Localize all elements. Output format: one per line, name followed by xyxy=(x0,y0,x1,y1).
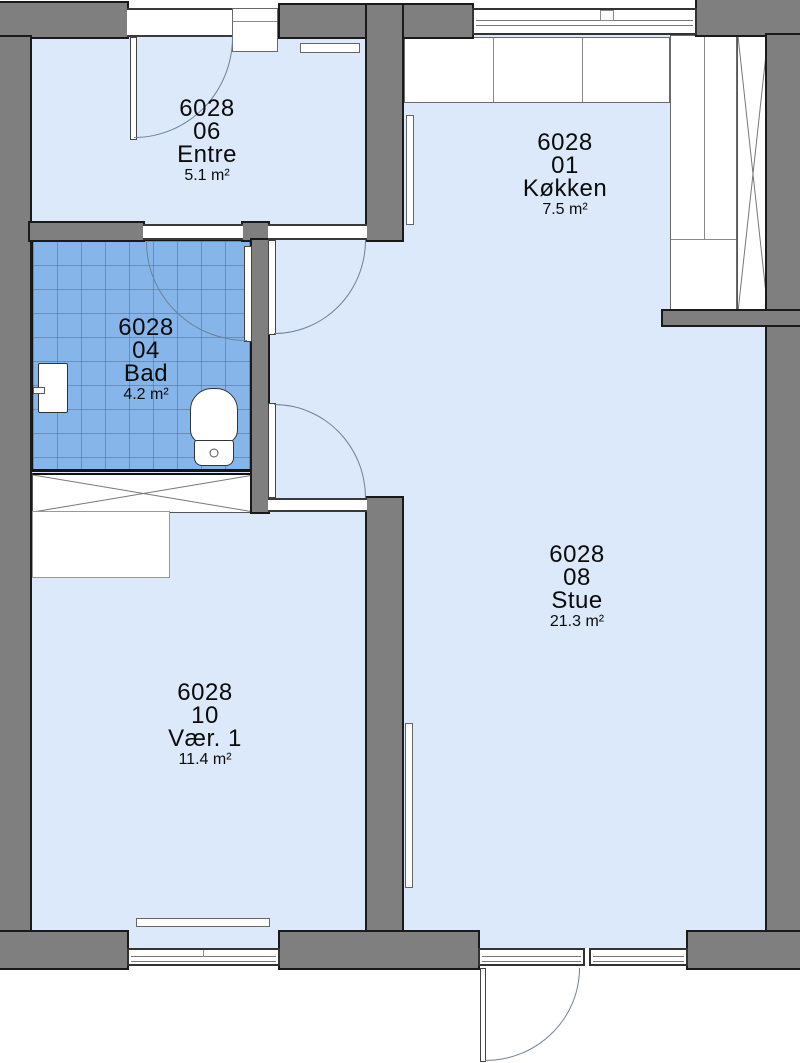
room-label-bad: 6028 04 Bad 4.2 m² xyxy=(61,316,231,405)
wall-bedroom-livingroom xyxy=(367,498,402,932)
wall-top-left xyxy=(0,3,127,37)
floor-plan: 6028 01 Køkken 7.5 m² 6028 04 Bad 4.2 m²… xyxy=(0,0,800,1063)
room-number: 04 xyxy=(61,339,231,362)
room-label-vaer1: 6028 10 Vær. 1 11.4 m² xyxy=(120,681,290,770)
wall-entre-kitchen xyxy=(367,5,402,240)
wall-bottom-a xyxy=(0,932,127,968)
bathroom-door-frame xyxy=(143,224,243,240)
radiator-livingroom xyxy=(405,723,413,888)
room-number: 08 xyxy=(492,566,662,589)
window-mullion xyxy=(600,10,614,21)
entrance-door-arc xyxy=(485,968,580,1061)
room-number: 06 xyxy=(122,120,292,143)
room-name: Vær. 1 xyxy=(120,727,290,750)
room-number: 10 xyxy=(120,704,290,727)
room-id: 6028 xyxy=(61,316,231,339)
wall-top-right xyxy=(697,0,800,35)
wall-bottom-c xyxy=(688,932,800,968)
toilet-tank xyxy=(194,440,234,466)
wall-left xyxy=(0,37,30,932)
room-name: Køkken xyxy=(480,177,650,200)
room-area: 4.2 m² xyxy=(61,385,231,405)
room-label-stue: 6028 08 Stue 21.3 m² xyxy=(492,543,662,632)
room-area: 11.4 m² xyxy=(120,750,290,770)
wall-right xyxy=(767,35,800,968)
radiator-bedroom xyxy=(136,918,270,927)
room-label-kokken: 6028 01 Køkken 7.5 m² xyxy=(480,131,650,220)
radiator-entre xyxy=(300,43,360,53)
wall-kitchen-south xyxy=(663,311,800,325)
bedroom-window xyxy=(127,948,280,966)
entrance-door-threshold xyxy=(478,948,585,966)
entre-entry-door-frame xyxy=(127,8,232,37)
wardrobe-crossbox xyxy=(32,473,255,513)
room-label-entre: 6028 06 Entre 5.1 m² xyxy=(122,97,292,186)
wall-entre-bath-a xyxy=(30,223,143,240)
wall-bath-livingroom xyxy=(252,240,268,512)
room-name: Bad xyxy=(61,362,231,385)
wall-bottom-b xyxy=(280,932,478,968)
bedroom-door-frame xyxy=(268,498,367,512)
bedroom-closet xyxy=(32,511,170,578)
room-area: 21.3 m² xyxy=(492,612,662,632)
kitchen-counter-right-column xyxy=(670,35,737,311)
wall-entre-bath-pier xyxy=(243,223,268,240)
entre-sidelight-window xyxy=(232,8,278,52)
livingroom-upper-door-frame xyxy=(268,224,367,240)
livingroom-window xyxy=(589,948,688,966)
kitchen-window xyxy=(472,8,697,35)
radiator-kitchen xyxy=(406,115,414,225)
room-id: 6028 xyxy=(480,131,650,154)
room-area: 5.1 m² xyxy=(122,166,292,186)
kitchen-counter-top-row xyxy=(404,37,670,103)
room-name: Entre xyxy=(122,143,292,166)
room-id: 6028 xyxy=(122,97,292,120)
room-name: Stue xyxy=(492,589,662,612)
room-id: 6028 xyxy=(120,681,290,704)
room-area: 7.5 m² xyxy=(480,200,650,220)
toilet-flush-button xyxy=(210,449,219,458)
room-number: 01 xyxy=(480,154,650,177)
duct-shaft-crossbox xyxy=(737,35,769,313)
room-id: 6028 xyxy=(492,543,662,566)
